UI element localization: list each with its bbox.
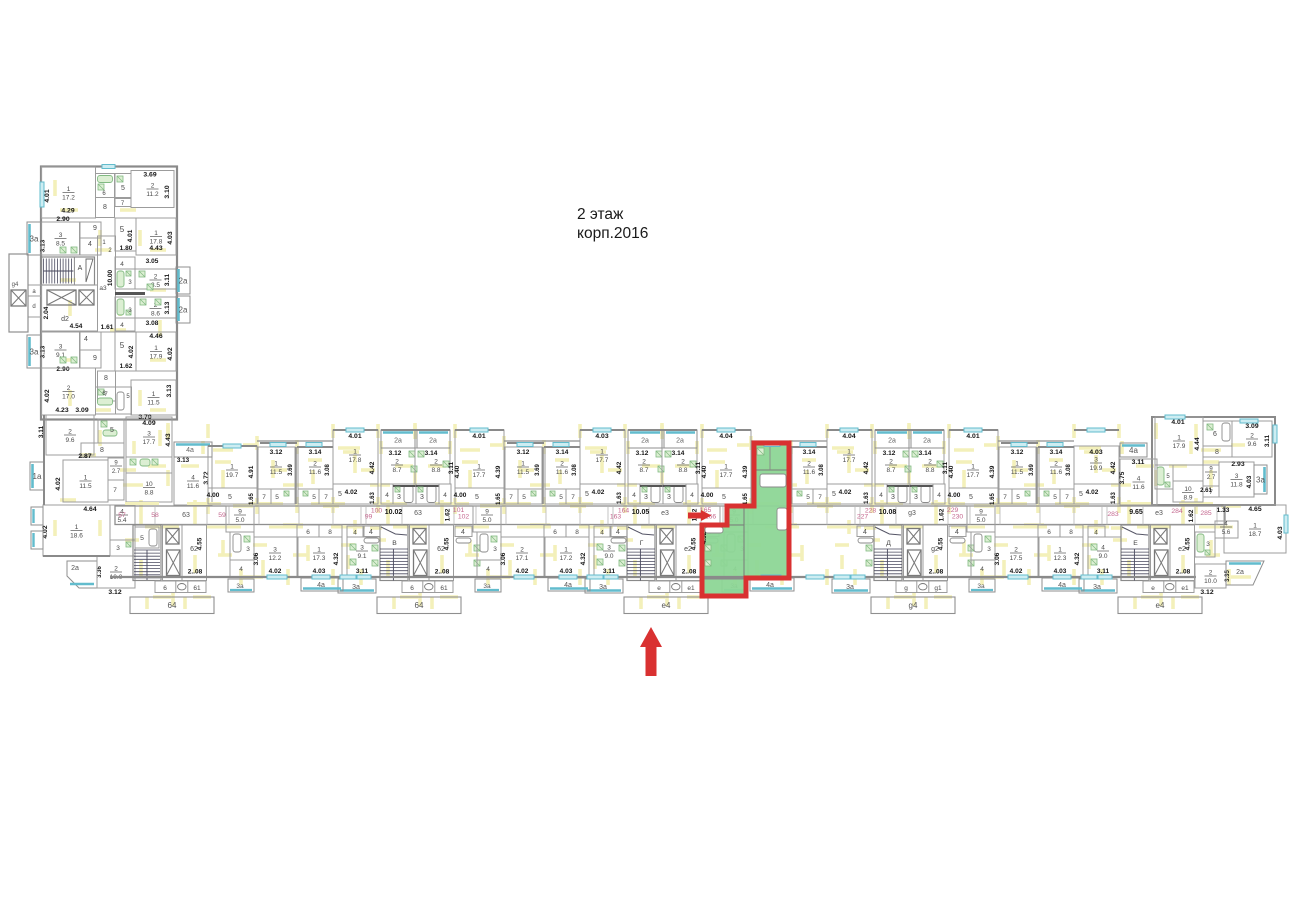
- svg-text:2a: 2a: [641, 438, 649, 445]
- svg-text:7: 7: [113, 487, 117, 494]
- svg-text:9.0: 9.0: [604, 553, 613, 560]
- svg-text:3: 3: [493, 546, 497, 553]
- svg-text:283: 283: [1107, 511, 1119, 518]
- svg-text:3.12: 3.12: [1200, 589, 1213, 596]
- svg-text:3.14: 3.14: [672, 450, 685, 457]
- svg-text:3: 3: [360, 545, 364, 552]
- svg-text:2: 2: [108, 248, 112, 254]
- svg-text:4.03: 4.03: [560, 568, 573, 575]
- svg-text:1: 1: [1015, 461, 1019, 468]
- svg-text:10: 10: [145, 481, 153, 488]
- svg-text:1: 1: [847, 449, 851, 456]
- svg-text:3: 3: [147, 431, 151, 438]
- svg-text:61: 61: [193, 585, 201, 592]
- svg-text:17.0: 17.0: [62, 394, 75, 401]
- svg-text:3.13: 3.13: [166, 384, 173, 397]
- svg-text:4: 4: [955, 529, 959, 536]
- svg-text:3.11: 3.11: [1264, 434, 1271, 447]
- svg-text:5.6: 5.6: [1222, 530, 1231, 536]
- svg-text:2: 2: [154, 274, 158, 281]
- svg-text:5: 5: [126, 394, 130, 400]
- svg-text:163: 163: [610, 514, 622, 521]
- svg-text:5: 5: [110, 427, 114, 434]
- svg-text:4: 4: [980, 566, 984, 573]
- svg-text:g1: g1: [934, 585, 942, 592]
- svg-text:3a: 3a: [352, 584, 360, 591]
- svg-text:4.02: 4.02: [44, 389, 51, 402]
- svg-text:4.00: 4.00: [948, 492, 961, 499]
- svg-text:2: 2: [313, 461, 317, 468]
- svg-text:4.00: 4.00: [701, 492, 714, 499]
- svg-text:63: 63: [182, 512, 190, 519]
- svg-text:11.6: 11.6: [556, 469, 569, 476]
- svg-text:3: 3: [59, 232, 63, 239]
- svg-text:2: 2: [1209, 570, 1213, 577]
- svg-text:5: 5: [312, 494, 316, 501]
- svg-text:7: 7: [509, 494, 513, 501]
- svg-text:4.02: 4.02: [1086, 489, 1099, 496]
- svg-text:2: 2: [68, 429, 72, 436]
- svg-text:10.02: 10.02: [385, 509, 403, 516]
- svg-text:3: 3: [246, 546, 250, 553]
- svg-text:3.69: 3.69: [288, 464, 294, 476]
- svg-text:5.0: 5.0: [235, 517, 244, 524]
- svg-text:4.65: 4.65: [1248, 506, 1261, 513]
- svg-text:8.7: 8.7: [886, 467, 895, 474]
- svg-text:11.2: 11.2: [146, 191, 159, 198]
- svg-text:57: 57: [118, 512, 126, 519]
- svg-text:3.11: 3.11: [356, 568, 369, 575]
- svg-text:8: 8: [1215, 449, 1219, 456]
- svg-text:8.8: 8.8: [144, 490, 153, 497]
- svg-text:18.6: 18.6: [70, 533, 83, 540]
- svg-text:17.2: 17.2: [560, 555, 573, 562]
- svg-text:8: 8: [1069, 529, 1073, 536]
- svg-text:9: 9: [93, 355, 97, 362]
- svg-text:4a: 4a: [766, 582, 774, 589]
- svg-text:4: 4: [690, 492, 694, 499]
- svg-text:3.36: 3.36: [97, 566, 103, 578]
- svg-text:4: 4: [84, 336, 88, 343]
- svg-text:3.13: 3.13: [177, 457, 190, 464]
- svg-text:3: 3: [128, 308, 132, 314]
- svg-text:2..08: 2..08: [188, 569, 203, 576]
- svg-text:4.54: 4.54: [70, 323, 83, 330]
- svg-text:4a: 4a: [1058, 582, 1066, 589]
- svg-text:3: 3: [891, 494, 895, 501]
- svg-text:5: 5: [722, 494, 726, 501]
- svg-text:230: 230: [952, 514, 964, 521]
- svg-text:1: 1: [521, 461, 525, 468]
- svg-text:3: 3: [644, 494, 648, 501]
- svg-text:В: В: [392, 540, 397, 547]
- svg-text:4.03: 4.03: [1277, 526, 1284, 539]
- svg-text:4.40: 4.40: [948, 465, 955, 478]
- svg-text:6: 6: [163, 585, 167, 592]
- svg-text:3.14: 3.14: [803, 449, 816, 456]
- svg-text:2a: 2a: [888, 438, 896, 445]
- svg-text:284: 284: [1171, 508, 1183, 515]
- svg-text:17.3: 17.3: [313, 555, 326, 562]
- svg-text:4.01: 4.01: [127, 229, 134, 242]
- svg-text:3: 3: [116, 545, 120, 552]
- svg-text:4.32: 4.32: [333, 552, 340, 565]
- svg-text:2: 2: [642, 459, 646, 466]
- svg-text:4: 4: [353, 530, 357, 537]
- svg-text:4.03: 4.03: [1246, 475, 1253, 488]
- svg-text:5: 5: [832, 491, 836, 498]
- svg-text:4.03: 4.03: [595, 433, 608, 440]
- svg-text:4.55: 4.55: [938, 537, 945, 550]
- svg-text:4: 4: [239, 566, 243, 573]
- svg-text:2..08: 2..08: [682, 569, 697, 576]
- svg-text:3.69: 3.69: [1029, 464, 1035, 476]
- svg-text:3.06: 3.06: [253, 552, 260, 565]
- svg-text:e1: e1: [687, 585, 695, 592]
- svg-text:2..08: 2..08: [929, 569, 944, 576]
- svg-text:4.02: 4.02: [269, 568, 282, 575]
- svg-text:4.09: 4.09: [142, 420, 155, 427]
- svg-text:2a: 2a: [1236, 569, 1244, 576]
- svg-text:17.7: 17.7: [967, 472, 980, 479]
- svg-text:4: 4: [616, 529, 620, 536]
- svg-text:6: 6: [1047, 529, 1051, 536]
- svg-text:2.7: 2.7: [112, 469, 121, 475]
- svg-text:8: 8: [103, 204, 107, 211]
- svg-text:4.01: 4.01: [966, 433, 979, 440]
- svg-text:2a: 2a: [429, 438, 437, 445]
- svg-text:9.1: 9.1: [357, 553, 366, 560]
- svg-text:3.08: 3.08: [325, 464, 331, 476]
- svg-text:e: e: [657, 585, 661, 592]
- svg-text:3a: 3a: [846, 584, 854, 591]
- svg-text:99: 99: [365, 514, 373, 521]
- svg-text:e3: e3: [661, 510, 669, 517]
- svg-text:2: 2: [434, 459, 438, 466]
- svg-text:4: 4: [486, 566, 490, 573]
- svg-text:1.63: 1.63: [1111, 492, 1117, 504]
- svg-text:1: 1: [67, 186, 71, 193]
- svg-text:3.12: 3.12: [1011, 449, 1024, 456]
- svg-text:2: 2: [807, 461, 811, 468]
- svg-text:4.04: 4.04: [719, 433, 732, 440]
- svg-text:17.9: 17.9: [1173, 443, 1186, 450]
- svg-text:2: 2: [395, 459, 399, 466]
- svg-text:17.7: 17.7: [720, 472, 733, 479]
- svg-text:1.62: 1.62: [1188, 509, 1195, 522]
- svg-text:9.6: 9.6: [1247, 441, 1256, 448]
- svg-text:8: 8: [328, 529, 332, 536]
- svg-text:3.06: 3.06: [994, 552, 1001, 565]
- svg-text:5.0: 5.0: [482, 517, 491, 524]
- svg-text:1.63: 1.63: [864, 492, 870, 504]
- svg-text:4.02: 4.02: [592, 489, 605, 496]
- svg-text:8.8: 8.8: [678, 467, 687, 474]
- svg-text:5: 5: [121, 185, 125, 192]
- svg-text:4.01: 4.01: [1171, 419, 1184, 426]
- svg-text:1: 1: [230, 464, 234, 471]
- svg-text:4: 4: [879, 492, 883, 499]
- svg-text:2.7: 2.7: [1207, 475, 1216, 481]
- svg-text:5: 5: [1053, 494, 1057, 501]
- svg-text:4.42: 4.42: [863, 461, 870, 474]
- svg-text:2: 2: [928, 459, 932, 466]
- svg-text:4.00: 4.00: [207, 492, 220, 499]
- svg-text:2: 2: [520, 547, 524, 554]
- svg-text:2a: 2a: [394, 438, 402, 445]
- svg-text:1.65: 1.65: [743, 493, 749, 505]
- svg-text:1.63: 1.63: [370, 492, 376, 504]
- svg-text:64: 64: [168, 601, 177, 610]
- svg-text:3: 3: [420, 494, 424, 501]
- svg-text:4.43: 4.43: [149, 245, 162, 252]
- svg-text:4.01: 4.01: [44, 189, 51, 202]
- svg-text:10.0: 10.0: [1204, 578, 1217, 585]
- svg-text:4.03: 4.03: [1054, 568, 1067, 575]
- svg-text:17.7: 17.7: [143, 439, 156, 446]
- svg-text:10.05: 10.05: [632, 509, 650, 516]
- svg-text:4: 4: [120, 322, 124, 329]
- svg-text:4: 4: [632, 492, 636, 499]
- svg-text:3.12: 3.12: [270, 449, 283, 456]
- svg-text:1: 1: [724, 464, 728, 471]
- svg-text:4.00: 4.00: [454, 492, 467, 499]
- svg-text:4.32: 4.32: [1074, 552, 1081, 565]
- svg-text:8: 8: [104, 375, 108, 382]
- svg-text:3a: 3a: [1256, 476, 1265, 485]
- svg-text:2: 2: [1014, 547, 1018, 554]
- svg-text:4.46: 4.46: [149, 333, 162, 340]
- svg-text:9: 9: [485, 509, 489, 516]
- svg-text:2.93: 2.93: [1231, 461, 1244, 468]
- svg-text:2a: 2a: [71, 565, 79, 572]
- svg-text:1.61: 1.61: [101, 324, 114, 331]
- svg-text:4.42: 4.42: [616, 461, 623, 474]
- svg-text:Е: Е: [1133, 540, 1138, 547]
- svg-text:9.6: 9.6: [65, 437, 74, 444]
- svg-text:5: 5: [120, 341, 125, 350]
- svg-text:4: 4: [88, 241, 92, 248]
- svg-text:a3: a3: [99, 285, 107, 292]
- svg-text:4.02: 4.02: [516, 568, 529, 575]
- svg-text:1: 1: [564, 547, 568, 554]
- svg-text:4.04: 4.04: [842, 433, 855, 440]
- svg-text:5: 5: [140, 535, 144, 542]
- svg-text:59: 59: [218, 512, 226, 519]
- svg-text:2: 2: [67, 385, 71, 392]
- svg-text:4: 4: [600, 530, 604, 537]
- svg-text:4.02: 4.02: [345, 489, 358, 496]
- svg-text:4.91: 4.91: [248, 465, 255, 478]
- svg-text:2.04: 2.04: [43, 306, 50, 319]
- svg-text:1.62: 1.62: [939, 508, 946, 521]
- svg-text:3a: 3a: [483, 583, 491, 590]
- svg-text:3.11: 3.11: [603, 568, 616, 575]
- svg-text:19.9: 19.9: [1090, 465, 1103, 472]
- svg-text:2: 2: [1054, 461, 1058, 468]
- svg-text:8.5: 8.5: [56, 241, 65, 248]
- svg-text:3: 3: [397, 494, 401, 501]
- svg-text:11.6: 11.6: [309, 469, 322, 476]
- svg-text:4.39: 4.39: [495, 465, 502, 478]
- svg-text:3.72: 3.72: [203, 471, 210, 484]
- svg-text:2.61: 2.61: [1200, 488, 1212, 494]
- svg-text:4.39: 4.39: [989, 465, 996, 478]
- svg-text:1.80: 1.80: [120, 245, 133, 252]
- svg-text:4.44: 4.44: [1194, 437, 1201, 450]
- svg-text:102: 102: [458, 514, 470, 521]
- svg-text:2: 2: [560, 461, 564, 468]
- svg-text:4.32: 4.32: [580, 552, 587, 565]
- svg-text:3: 3: [914, 494, 918, 501]
- svg-text:9: 9: [93, 225, 97, 232]
- svg-text:1: 1: [1058, 547, 1062, 554]
- svg-text:d: d: [32, 304, 35, 310]
- svg-text:3.11: 3.11: [1097, 568, 1110, 575]
- svg-text:1: 1: [154, 230, 158, 237]
- svg-text:6: 6: [102, 191, 106, 197]
- svg-text:3: 3: [128, 280, 132, 286]
- svg-text:4.42: 4.42: [1110, 461, 1117, 474]
- svg-text:4.02: 4.02: [1010, 568, 1023, 575]
- svg-text:3: 3: [667, 494, 671, 501]
- svg-text:1: 1: [75, 524, 79, 531]
- svg-text:3: 3: [987, 546, 991, 553]
- svg-text:A: A: [78, 265, 83, 272]
- svg-text:3.08: 3.08: [572, 464, 578, 476]
- svg-text:1: 1: [600, 449, 604, 456]
- svg-text:10.00: 10.00: [107, 269, 114, 286]
- svg-text:8.7: 8.7: [392, 467, 401, 474]
- svg-text:1: 1: [317, 547, 321, 554]
- svg-text:g4: g4: [12, 282, 19, 288]
- svg-text:18.7: 18.7: [1249, 531, 1262, 538]
- svg-text:6: 6: [306, 529, 310, 536]
- svg-text:g4: g4: [909, 601, 918, 610]
- svg-text:7: 7: [262, 494, 266, 501]
- svg-text:4.39: 4.39: [742, 465, 749, 478]
- svg-text:3: 3: [607, 545, 611, 552]
- svg-text:3.08: 3.08: [146, 320, 159, 327]
- svg-text:4.03: 4.03: [167, 231, 174, 244]
- svg-text:3: 3: [1206, 541, 1210, 548]
- svg-text:7: 7: [324, 494, 328, 501]
- svg-text:11.5: 11.5: [270, 469, 283, 476]
- svg-text:5: 5: [806, 494, 810, 501]
- svg-text:1.62: 1.62: [445, 508, 452, 521]
- svg-text:3a: 3a: [30, 235, 39, 244]
- svg-text:7: 7: [818, 494, 822, 501]
- svg-text:2: 2: [1250, 433, 1254, 440]
- svg-text:4.40: 4.40: [701, 465, 708, 478]
- svg-text:4.40: 4.40: [454, 465, 461, 478]
- svg-text:63: 63: [414, 510, 422, 517]
- svg-text:g: g: [904, 585, 908, 592]
- svg-text:4.03: 4.03: [1089, 449, 1102, 456]
- svg-text:5: 5: [1166, 474, 1170, 480]
- svg-text:8.8: 8.8: [925, 467, 934, 474]
- svg-text:1: 1: [353, 449, 357, 456]
- svg-text:1a: 1a: [33, 472, 42, 481]
- svg-text:227: 227: [857, 514, 869, 521]
- svg-text:3.69: 3.69: [535, 464, 541, 476]
- svg-text:5: 5: [585, 491, 589, 498]
- svg-text:10.08: 10.08: [879, 509, 897, 516]
- svg-text:5: 5: [120, 225, 125, 234]
- svg-text:4: 4: [369, 529, 373, 536]
- svg-text:12.2: 12.2: [269, 555, 282, 562]
- svg-text:61: 61: [440, 585, 448, 592]
- svg-text:17.5: 17.5: [1010, 555, 1023, 562]
- svg-text:3.08: 3.08: [1066, 464, 1072, 476]
- svg-text:2a: 2a: [179, 277, 188, 286]
- svg-text:3.14: 3.14: [1050, 449, 1063, 456]
- svg-text:5: 5: [559, 494, 563, 501]
- svg-text:4.43: 4.43: [165, 433, 172, 446]
- svg-text:3a: 3a: [236, 583, 244, 590]
- svg-text:3.75: 3.75: [1119, 471, 1126, 484]
- svg-text:d2: d2: [61, 316, 69, 323]
- svg-text:8: 8: [575, 529, 579, 536]
- svg-text:3: 3: [273, 547, 277, 554]
- svg-text:10: 10: [1184, 486, 1192, 493]
- svg-text:4.55: 4.55: [197, 537, 204, 550]
- svg-text:3.12: 3.12: [636, 450, 649, 457]
- svg-text:11.6: 11.6: [1050, 469, 1063, 476]
- svg-text:2 этаж: 2 этаж: [577, 206, 624, 223]
- svg-text:3: 3: [1235, 473, 1239, 480]
- svg-text:1.33: 1.33: [1217, 507, 1230, 514]
- svg-text:1: 1: [971, 464, 975, 471]
- svg-text:2: 2: [681, 459, 685, 466]
- svg-text:2a: 2a: [923, 438, 931, 445]
- svg-text:1: 1: [152, 391, 156, 398]
- svg-text:2: 2: [114, 566, 118, 573]
- svg-text:a: a: [32, 289, 36, 295]
- svg-text:8.6: 8.6: [151, 311, 160, 318]
- svg-text:5: 5: [1016, 494, 1020, 501]
- svg-text:4.01: 4.01: [348, 433, 361, 440]
- svg-text:228: 228: [865, 508, 877, 515]
- svg-text:7: 7: [1065, 494, 1069, 501]
- svg-text:1: 1: [102, 240, 106, 246]
- svg-text:3.08: 3.08: [819, 464, 825, 476]
- svg-text:9.0: 9.0: [1098, 553, 1107, 560]
- svg-text:11.5: 11.5: [79, 483, 92, 490]
- svg-text:4.03: 4.03: [313, 568, 326, 575]
- svg-text:8.9: 8.9: [1183, 495, 1192, 502]
- svg-text:11.5: 11.5: [517, 469, 530, 476]
- svg-text:17.2: 17.2: [62, 195, 75, 202]
- svg-text:11.5: 11.5: [147, 400, 160, 407]
- svg-text:5: 5: [338, 491, 342, 498]
- svg-text:3.14: 3.14: [556, 449, 569, 456]
- svg-text:1.62: 1.62: [120, 363, 133, 370]
- svg-text:9: 9: [238, 509, 242, 516]
- svg-text:7: 7: [571, 494, 575, 501]
- svg-text:1: 1: [1253, 523, 1257, 530]
- svg-text:100: 100: [371, 508, 383, 515]
- svg-text:4: 4: [443, 492, 447, 499]
- svg-text:12.3: 12.3: [1054, 555, 1067, 562]
- svg-text:3.10: 3.10: [164, 185, 171, 198]
- svg-text:4.02: 4.02: [128, 345, 135, 358]
- svg-text:4a: 4a: [317, 582, 325, 589]
- svg-text:e4: e4: [1156, 601, 1165, 610]
- svg-text:1: 1: [154, 345, 158, 352]
- svg-text:3.14: 3.14: [425, 450, 438, 457]
- svg-text:4: 4: [1137, 476, 1141, 483]
